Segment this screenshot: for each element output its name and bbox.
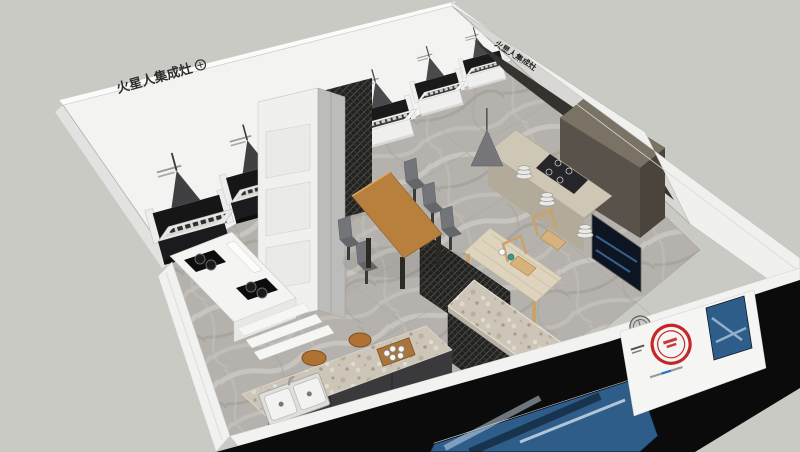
- scene-svg: 火星人集成灶 火星人集成灶 火星人集成灶: [0, 0, 800, 452]
- table-leg: [400, 257, 405, 289]
- column-panel: [266, 124, 310, 178]
- table-leg: [366, 238, 371, 268]
- column-panel: [266, 182, 310, 236]
- cup: [508, 254, 514, 260]
- cup: [499, 249, 505, 255]
- wood-stool: [302, 351, 326, 366]
- table-leg: [436, 233, 441, 265]
- wood-stool: [349, 333, 371, 347]
- pendant-hood-stem: [486, 108, 488, 130]
- showroom-3d-render: 火星人集成灶 火星人集成灶 火星人集成灶: [0, 0, 800, 452]
